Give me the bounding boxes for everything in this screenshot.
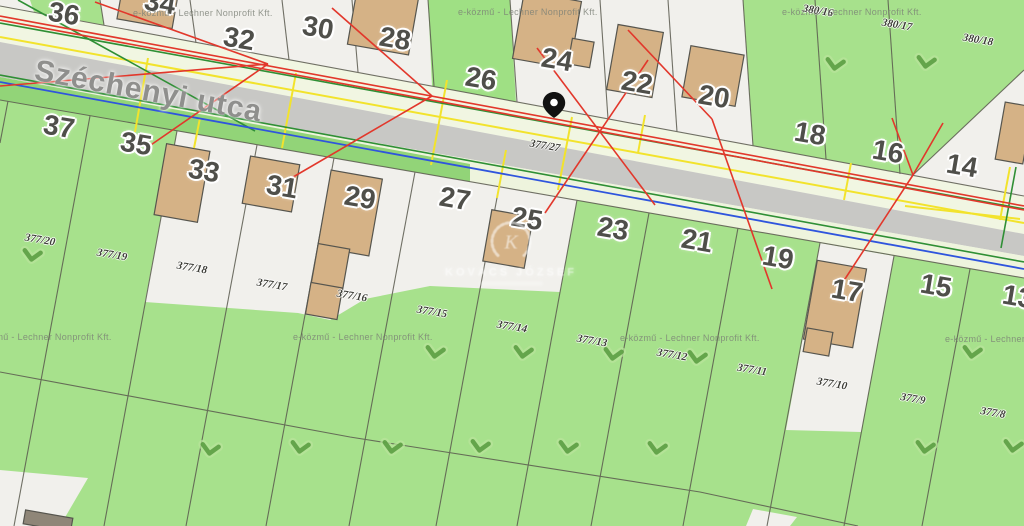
map-canvas[interactable]: Széchenyi utca 3634323028262422201816143… bbox=[0, 0, 1024, 526]
cadastral-map bbox=[0, 0, 1024, 526]
